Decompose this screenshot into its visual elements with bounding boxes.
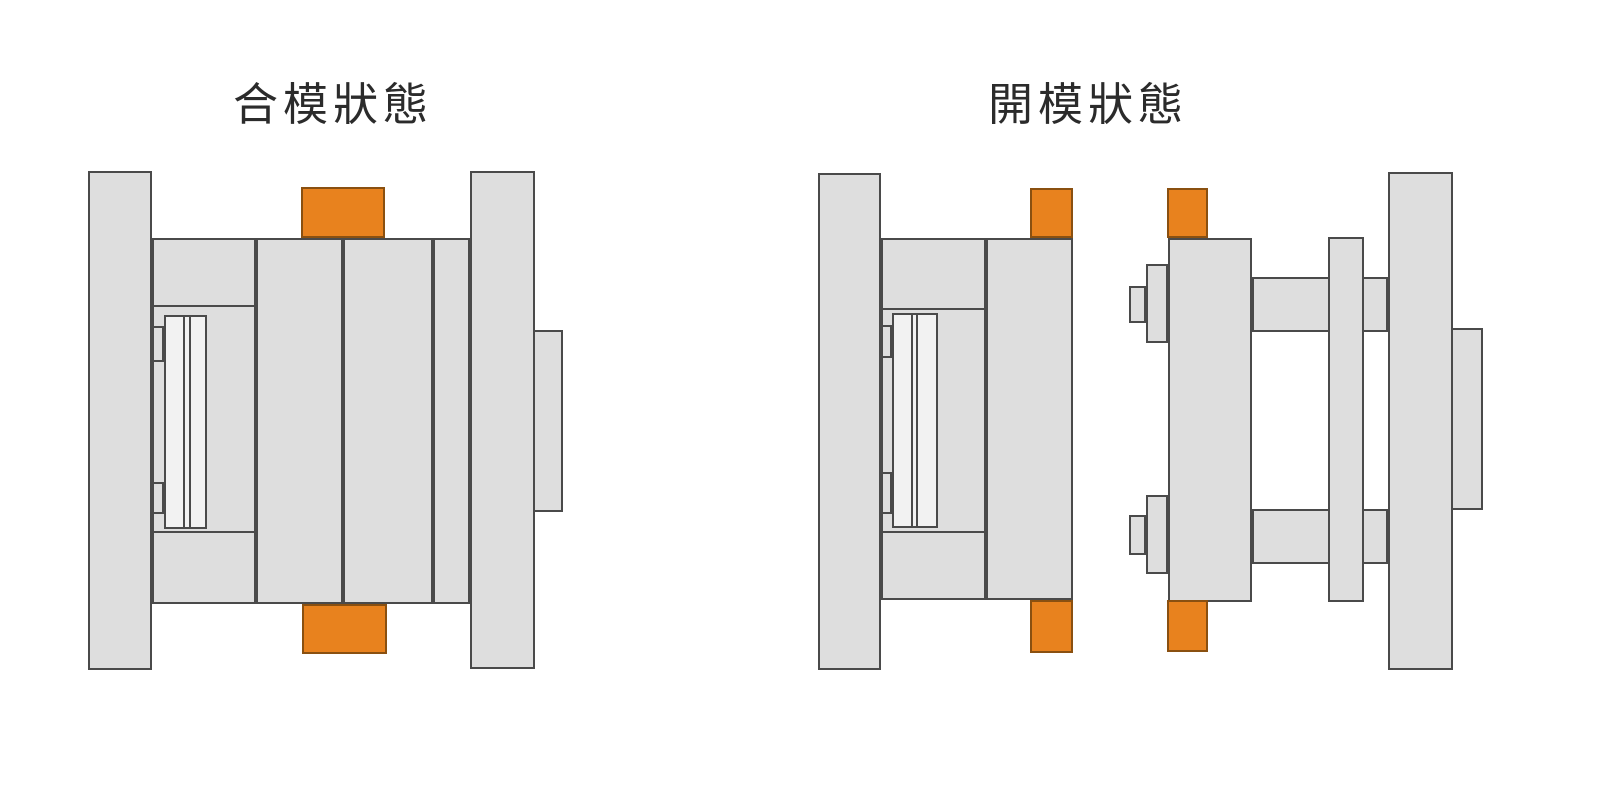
support-rod-bottom [1252,509,1388,564]
puller-bolt-bottom-head [1129,515,1146,555]
latch-block-top-moving [1030,188,1073,238]
puller-bolt-bottom [1146,495,1168,574]
puller-bolt-top-head [1129,286,1146,323]
puller-bolt-top [1146,264,1168,343]
movable-side-clamping-plate [818,173,881,670]
diagram-canvas: 合模狀態 開模狀態 [0,0,1600,785]
figure-open-state: 開模狀態 [0,0,1600,785]
cavity-plate-a [1168,238,1252,602]
locating-block [1451,328,1483,510]
latch-block-top-fixed [1167,188,1208,238]
return-pin-stub-top [881,325,892,358]
latch-block-bottom-fixed [1167,600,1208,652]
latch-block-bottom-moving [1030,600,1073,653]
fixed-side-clamping-plate [1388,172,1453,670]
return-pin-stub-bottom [881,472,892,514]
open-state-title: 開模狀態 [978,80,1198,130]
ejector-plate-divider [911,315,918,526]
support-rod-top [1252,277,1388,332]
runner-stripper-plate [1328,237,1364,602]
core-plate-b [986,238,1073,600]
